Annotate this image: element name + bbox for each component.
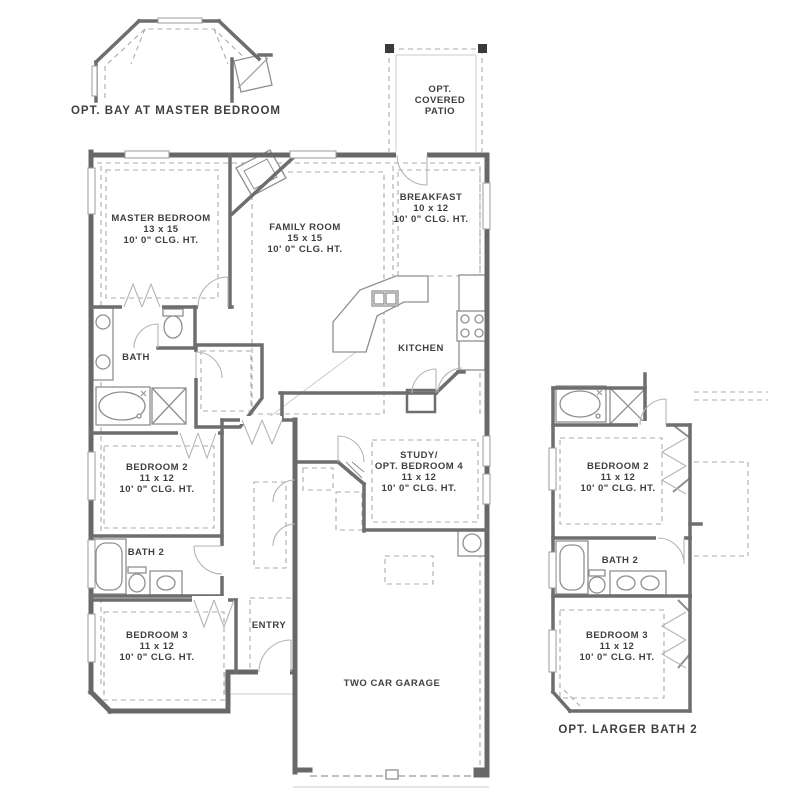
caption-opt-larger-bath2: OPT. LARGER BATH 2 [558, 725, 697, 736]
room-name: OPT. BEDROOM 4 [375, 461, 463, 472]
room-label-master-bedroom: MASTER BEDROOM 13 x 15 10' 0" CLG. HT. [111, 213, 210, 246]
room-name: BATH 2 [602, 555, 639, 566]
room-label-family-room: FAMILY ROOM 15 x 15 10' 0" CLG. HT. [268, 222, 343, 255]
room-label-breakfast: BREAKFAST 10 x 12 10' 0" CLG. HT. [394, 192, 469, 225]
room-label-garage: TWO CAR GARAGE [344, 678, 441, 689]
room-name: BEDROOM 2 [581, 461, 656, 472]
caption-text: OPT. LARGER BATH 2 [558, 725, 697, 736]
floor-plan-page: OPT. BAY AT MASTER BEDROOM OPT. COVERED … [0, 0, 800, 800]
room-name: COVERED [415, 95, 465, 106]
room-name: BATH 2 [128, 547, 165, 558]
room-label-kitchen: KITCHEN [398, 343, 444, 354]
room-dims: 13 x 15 [111, 224, 210, 235]
room-name: PATIO [415, 106, 465, 117]
room-dims: 11 x 12 [120, 641, 195, 652]
room-label-bedroom2: BEDROOM 2 11 x 12 10' 0" CLG. HT. [120, 462, 195, 495]
room-ceiling: 10' 0" CLG. HT. [268, 244, 343, 255]
room-name: TWO CAR GARAGE [344, 678, 441, 689]
room-label-covered-patio: OPT. COVERED PATIO [415, 84, 465, 117]
room-name: STUDY/ [375, 450, 463, 461]
room-label-study: STUDY/ OPT. BEDROOM 4 11 x 12 10' 0" CLG… [375, 450, 463, 494]
room-dims: 11 x 12 [581, 472, 656, 483]
room-ceiling: 10' 0" CLG. HT. [375, 483, 463, 494]
caption-opt-bay: OPT. BAY AT MASTER BEDROOM [71, 106, 281, 117]
room-dims: 11 x 12 [375, 472, 463, 483]
room-name: OPT. [415, 84, 465, 95]
room-name: BEDROOM 3 [580, 630, 655, 641]
room-label-entry: ENTRY [252, 620, 286, 631]
inset-room-label-bedroom2: BEDROOM 2 11 x 12 10' 0" CLG. HT. [581, 461, 656, 494]
room-name: MASTER BEDROOM [111, 213, 210, 224]
room-name: BATH [122, 352, 150, 363]
room-name: BEDROOM 2 [120, 462, 195, 473]
room-name: BREAKFAST [394, 192, 469, 203]
room-name: ENTRY [252, 620, 286, 631]
caption-text: OPT. BAY AT MASTER BEDROOM [71, 106, 281, 117]
room-name: BEDROOM 3 [120, 630, 195, 641]
inset-room-label-bath2: BATH 2 [602, 555, 639, 566]
inset-room-label-bedroom3: BEDROOM 3 11 x 12 10' 0" CLG. HT. [580, 630, 655, 663]
room-dims: 10 x 12 [394, 203, 469, 214]
room-ceiling: 10' 0" CLG. HT. [581, 483, 656, 494]
room-ceiling: 10' 0" CLG. HT. [111, 235, 210, 246]
room-ceiling: 10' 0" CLG. HT. [120, 652, 195, 663]
room-ceiling: 10' 0" CLG. HT. [394, 214, 469, 225]
room-label-bath: BATH [122, 352, 150, 363]
room-label-bath2: BATH 2 [128, 547, 165, 558]
room-ceiling: 10' 0" CLG. HT. [120, 484, 195, 495]
room-name: KITCHEN [398, 343, 444, 354]
room-dims: 11 x 12 [120, 473, 195, 484]
room-ceiling: 10' 0" CLG. HT. [580, 652, 655, 663]
room-label-bedroom3: BEDROOM 3 11 x 12 10' 0" CLG. HT. [120, 630, 195, 663]
room-name: FAMILY ROOM [268, 222, 343, 233]
room-dims: 11 x 12 [580, 641, 655, 652]
room-dims: 15 x 15 [268, 233, 343, 244]
